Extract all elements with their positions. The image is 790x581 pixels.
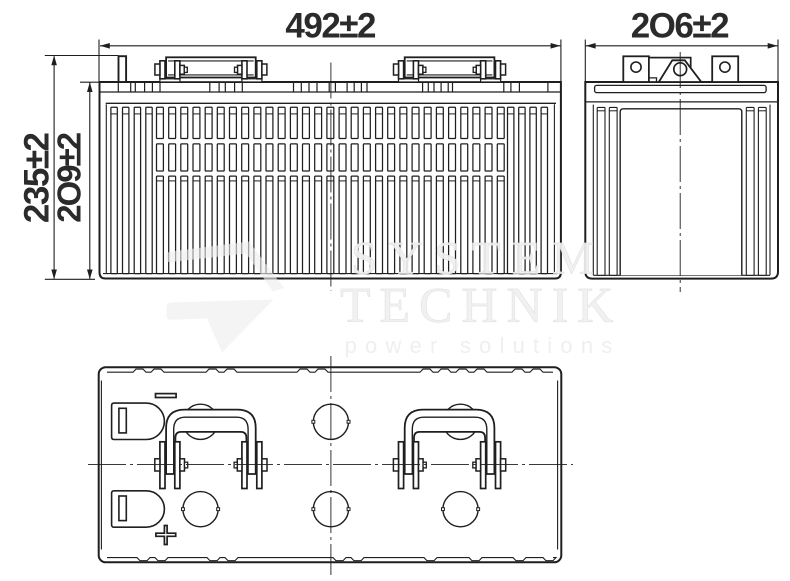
svg-text:2O9±2: 2O9±2 xyxy=(50,132,87,222)
svg-text:power solutions: power solutions xyxy=(345,333,621,358)
svg-text:2O6±2: 2O6±2 xyxy=(631,7,729,46)
svg-text:TECHNIK: TECHNIK xyxy=(340,277,622,333)
svg-text:492±2: 492±2 xyxy=(285,7,376,46)
